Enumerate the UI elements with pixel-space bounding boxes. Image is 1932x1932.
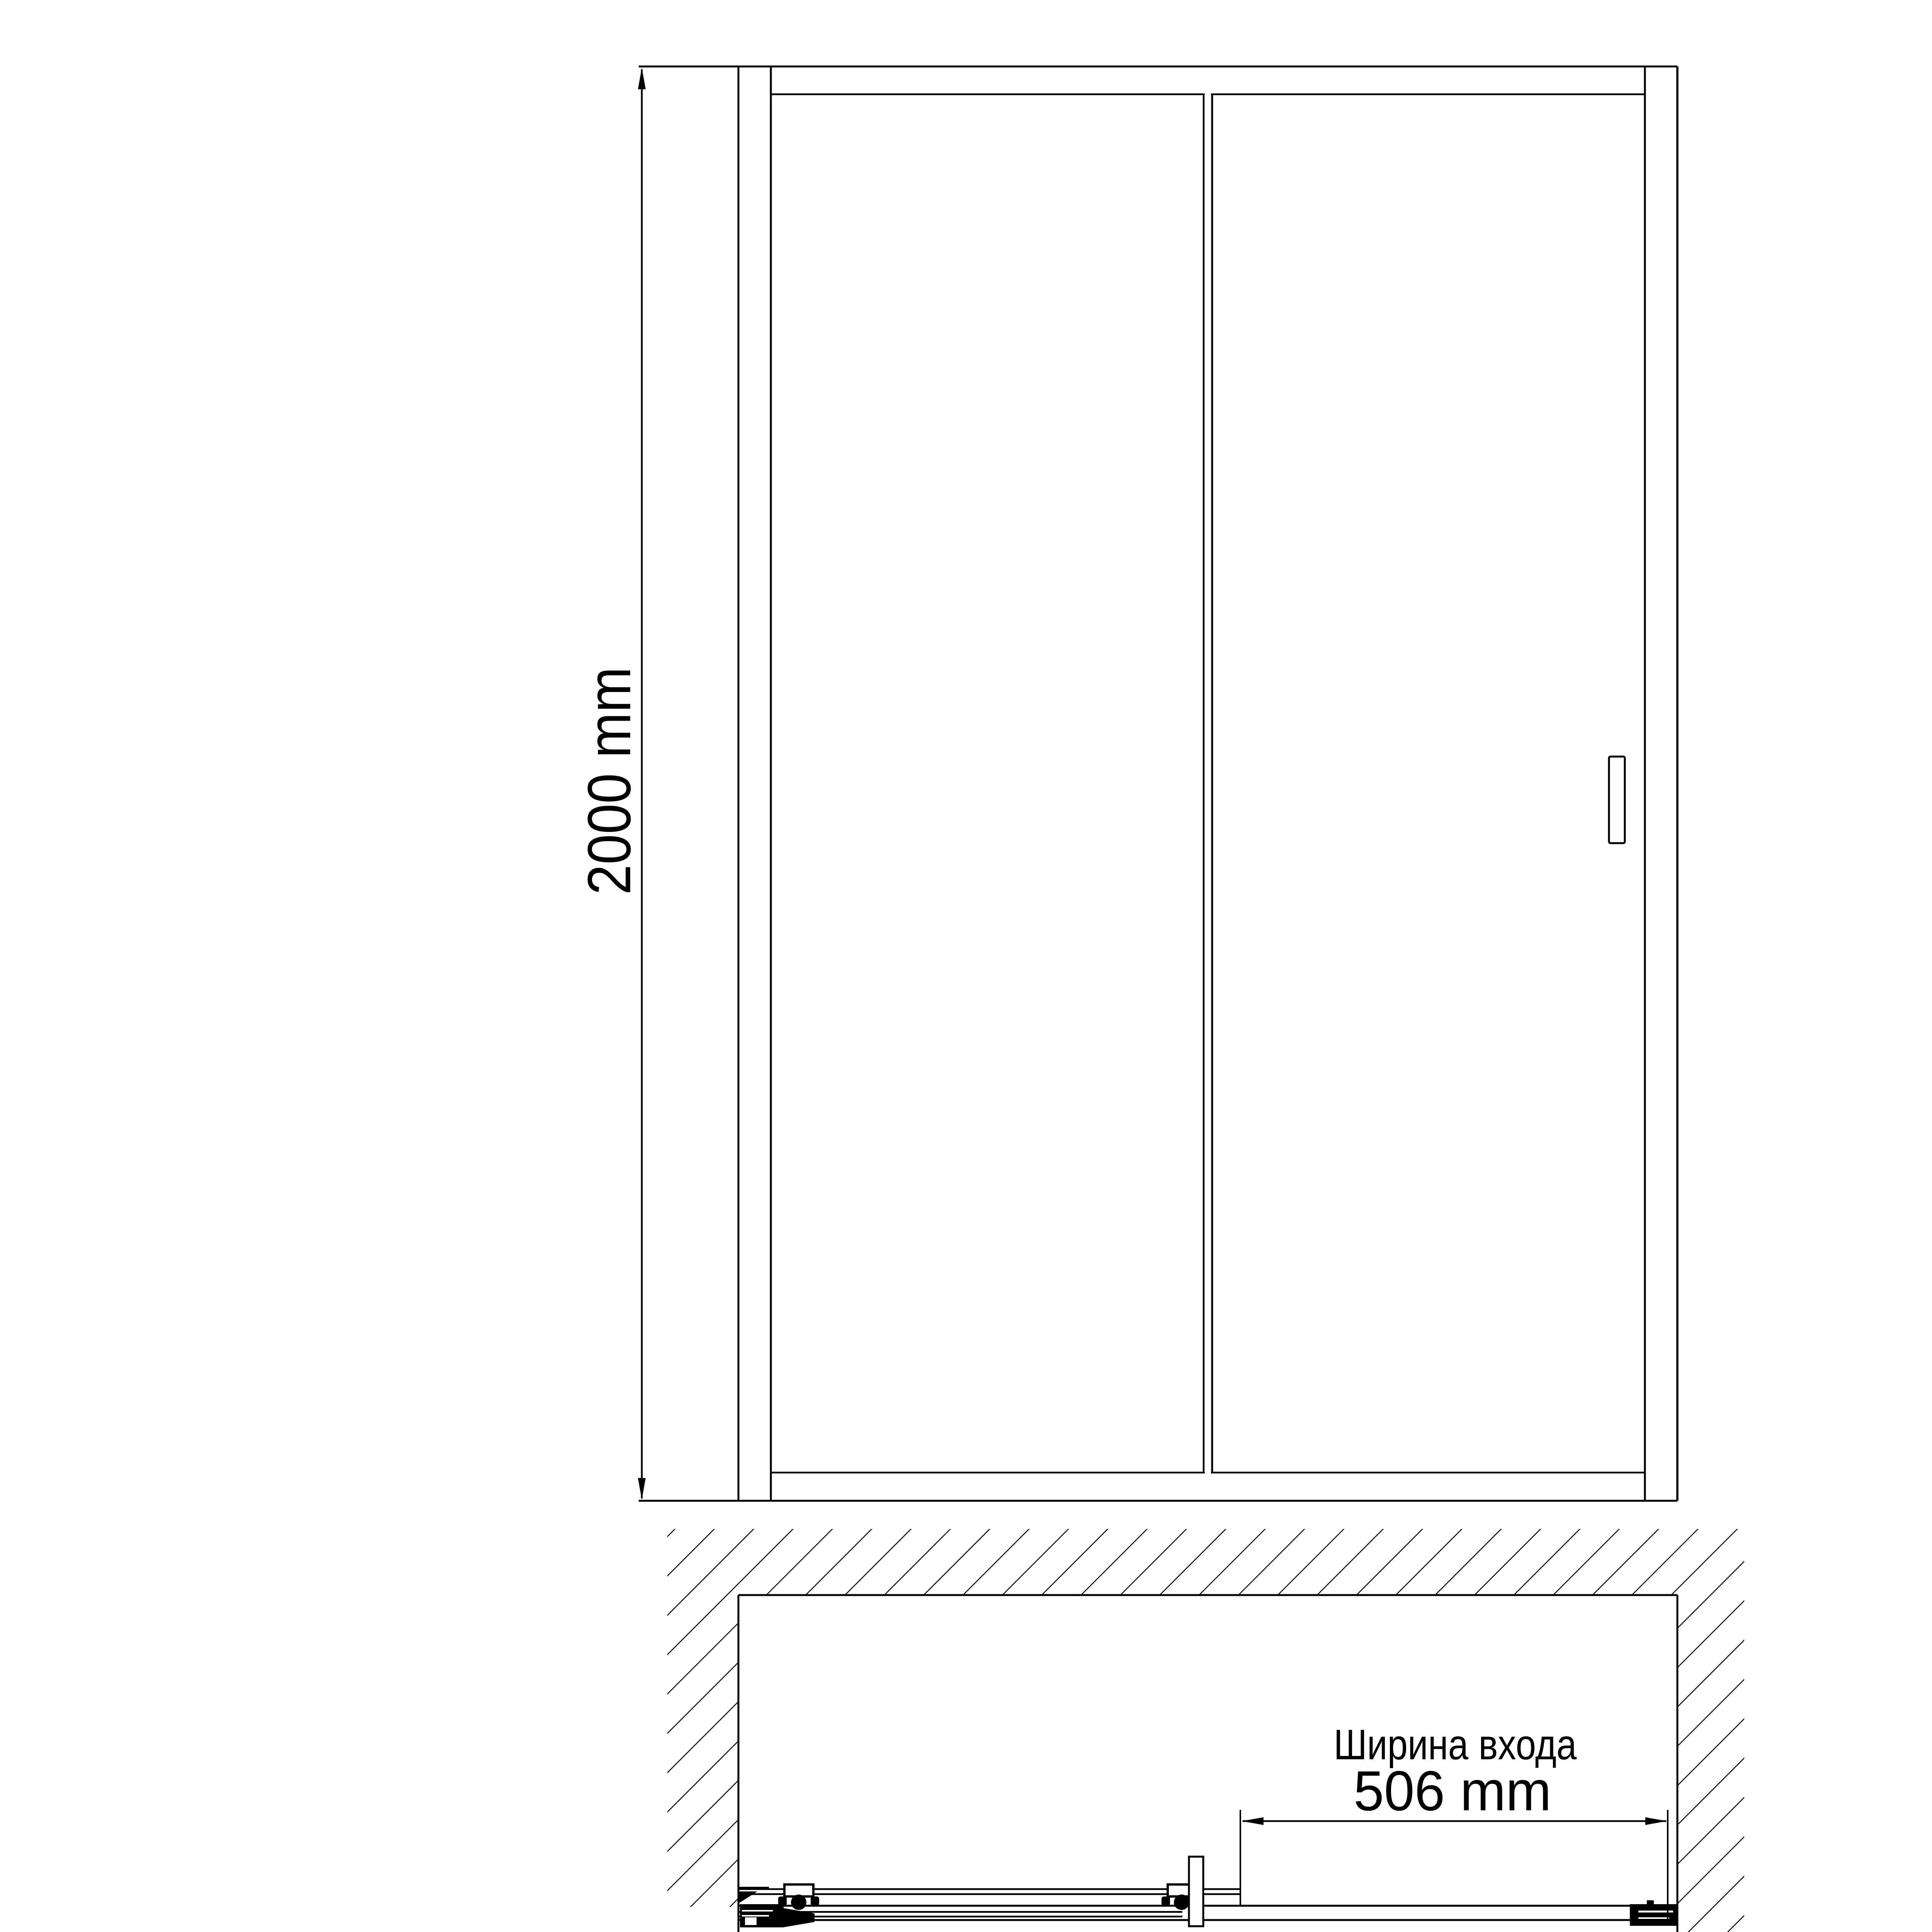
svg-text:506 mm: 506 mm — [1354, 1759, 1551, 1822]
svg-text:2000 mm: 2000 mm — [575, 667, 643, 895]
